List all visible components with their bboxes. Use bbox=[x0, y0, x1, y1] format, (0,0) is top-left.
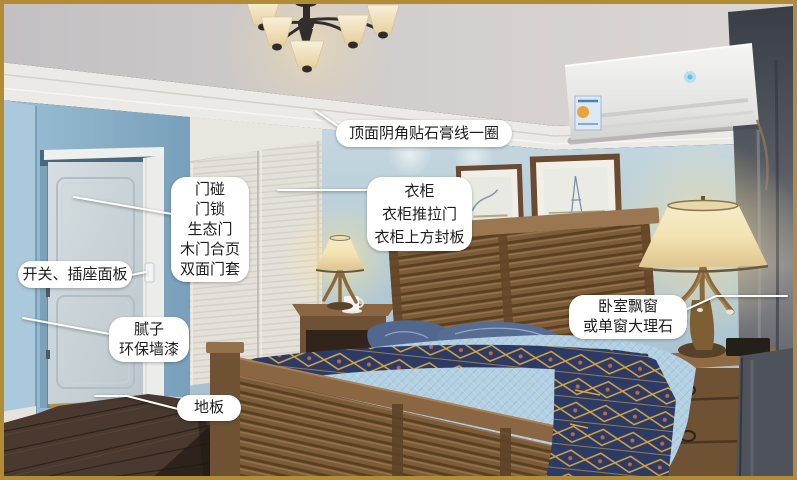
door-hinge bbox=[46, 350, 50, 359]
callout-text: 木门合页 bbox=[171, 240, 249, 260]
callout-text: 衣柜 bbox=[367, 180, 472, 203]
callout-switch-socket: 开关、插座面板 bbox=[18, 261, 132, 288]
callout-text: 顶面阴角贴石膏线一圈 bbox=[336, 124, 512, 144]
callout-text: 衣柜上方封板 bbox=[367, 226, 472, 249]
callout-text: 环保墙漆 bbox=[109, 340, 189, 360]
callout-bay-window: 卧室飘窗 或单窗大理石 bbox=[569, 295, 687, 339]
ac-led bbox=[688, 75, 693, 80]
callout-text: 衣柜推拉门 bbox=[367, 203, 472, 226]
callout-text: 腻子 bbox=[109, 320, 189, 340]
callout-door-parts: 门碰 门锁 生态门 木门合页 双面门套 bbox=[171, 177, 249, 282]
door-hinge bbox=[46, 288, 50, 297]
callout-text: 开关、插座面板 bbox=[18, 265, 132, 285]
ac-energy-sticker bbox=[575, 96, 601, 130]
annotated-bedroom-photo: 顶面阴角贴石膏线一圈 门碰 门锁 生态门 木门合页 双面门套 开关、插座面板 腻… bbox=[0, 0, 797, 480]
callout-text: 生态门 bbox=[171, 220, 249, 240]
callout-wall-paint: 腻子 环保墙漆 bbox=[109, 317, 189, 362]
curtain-front-fold bbox=[736, 348, 793, 478]
callout-text: 卧室飘窗 bbox=[569, 297, 687, 317]
callout-text: 门碰 bbox=[171, 180, 249, 200]
callout-ceiling-molding: 顶面阴角贴石膏线一圈 bbox=[336, 120, 512, 147]
callout-text: 双面门套 bbox=[171, 260, 249, 280]
callout-text: 门锁 bbox=[171, 200, 249, 220]
callout-wardrobe: 衣柜 衣柜推拉门 衣柜上方封板 bbox=[367, 177, 472, 251]
throw-blanket-drape bbox=[545, 348, 676, 480]
callout-text: 或单窗大理石 bbox=[569, 317, 687, 337]
callout-floor: 地板 bbox=[177, 395, 241, 421]
callout-text: 地板 bbox=[177, 398, 241, 418]
light-switch bbox=[145, 263, 154, 282]
